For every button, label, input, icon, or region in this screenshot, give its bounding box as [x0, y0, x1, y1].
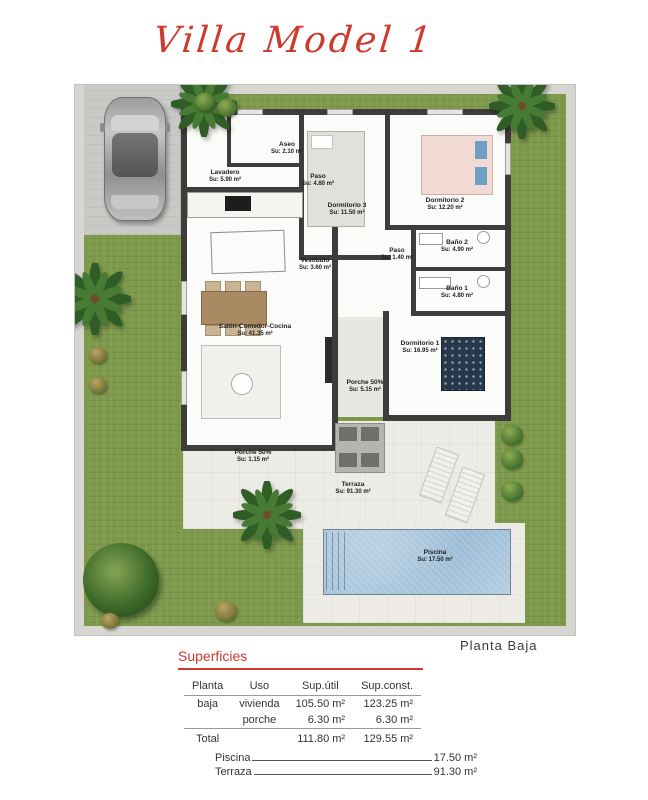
room-label-paso-2: PasoSu: 1.40 m² — [381, 247, 413, 263]
cell-uso: vivienda — [231, 696, 287, 713]
table-row: porche 6.30 m² 6.30 m² — [184, 712, 421, 729]
kitchen-island — [210, 230, 285, 275]
dining-table — [201, 291, 267, 325]
room-label-dormitorio-3: Dormitorio 3Su: 11.50 m² — [328, 202, 367, 218]
window — [505, 143, 511, 175]
outdoor-seat — [361, 453, 379, 467]
room-label-bano-1: Baño 1Su: 4.80 m² — [441, 285, 473, 301]
bed-pillow — [475, 141, 487, 159]
toilet — [477, 231, 490, 244]
room-label-porche-2: Porche 50%Su: 1.15 m² — [235, 449, 272, 465]
bush-icon — [501, 425, 523, 445]
cell-total-const: 129.55 m² — [353, 729, 421, 748]
driveway — [84, 85, 182, 235]
room-label-salon: Salón-Comedor-CocinaSu: 41.35 m² — [219, 323, 291, 339]
window — [181, 281, 187, 315]
cell-const: 6.30 m² — [353, 712, 421, 729]
cell-util: 6.30 m² — [288, 712, 354, 729]
bathroom-sink — [419, 233, 443, 245]
cell-total-util: 111.80 m² — [288, 729, 354, 748]
palm-tree-icon — [489, 85, 555, 139]
col-header-planta: Planta — [184, 678, 231, 696]
col-header-sup-const: Sup.const. — [353, 678, 421, 696]
wall — [411, 267, 511, 271]
bush-icon — [101, 613, 119, 629]
porch-floor — [335, 317, 387, 417]
wall — [383, 415, 511, 421]
room-label-porche-1: Porche 50%Su: 5.15 m² — [347, 379, 384, 395]
floor-plan: LavaderoSu: 5.90 m² AseoSu: 2.10 m² Paso… — [75, 85, 575, 635]
bed-dormitorio1 — [441, 337, 485, 391]
palm-tree-icon — [75, 263, 131, 335]
coffee-table — [231, 373, 253, 395]
cell-planta: baja — [184, 696, 231, 713]
bush-icon — [89, 347, 107, 363]
palm-tree-icon — [233, 481, 301, 549]
leader-line — [254, 773, 432, 775]
room-label-piscina: PiscinaSu: 17.50 m² — [417, 549, 452, 565]
wall — [411, 311, 511, 316]
bush-icon — [217, 99, 237, 117]
cell-util: 105.50 m² — [288, 696, 354, 713]
cell-uso: porche — [231, 712, 287, 729]
window — [181, 371, 187, 405]
extra-label: Terraza — [215, 766, 252, 778]
extra-row-terraza: Terraza 91.30 m² — [215, 766, 477, 778]
page: Villa Model 1 — [0, 0, 648, 800]
wall — [227, 163, 303, 167]
cell-const: 123.25 m² — [353, 696, 421, 713]
room-label-aseo: AseoSu: 2.10 m² — [271, 141, 303, 157]
room-label-vestibulo: VestíbuloSu: 3.60 m² — [299, 257, 331, 273]
table-row: baja vivienda 105.50 m² 123.25 m² — [184, 696, 421, 713]
extra-value: 91.30 m² — [434, 766, 477, 778]
room-label-paso: PasoSu: 4.80 m² — [302, 173, 334, 189]
tv-unit — [325, 337, 332, 383]
leader-line — [252, 759, 431, 761]
car-top-view-icon — [104, 97, 166, 221]
extra-value: 17.50 m² — [434, 752, 477, 764]
room-label-bano-2: Baño 2Su: 4.90 m² — [441, 239, 473, 255]
room-label-lavadero: LavaderoSu: 5.90 m² — [209, 169, 241, 185]
toilet — [477, 275, 490, 288]
table-row-total: Total 111.80 m² 129.55 m² — [184, 729, 421, 748]
outdoor-seat — [339, 427, 357, 441]
window — [237, 109, 263, 115]
room-label-terraza: TerrazaSu: 91.30 m² — [335, 481, 370, 497]
superficies-table: Planta Uso Sup.útil Sup.const. baja vivi… — [184, 678, 421, 747]
bush-icon — [89, 377, 107, 393]
superficies-block: Superficies Planta Uso Sup.útil Sup.cons… — [178, 648, 488, 747]
room-label-dormitorio-1: Dormitorio 1Su: 16.95 m² — [401, 340, 440, 356]
outdoor-seat — [361, 427, 379, 441]
bush-icon — [501, 449, 523, 469]
bed-pillow — [475, 167, 487, 185]
tree-icon — [83, 543, 159, 617]
window — [427, 109, 463, 115]
superficies-heading: Superficies — [178, 648, 423, 670]
wall — [385, 225, 511, 230]
bush-icon — [215, 601, 237, 621]
window — [327, 109, 353, 115]
wall — [385, 109, 390, 229]
cell-empty — [231, 729, 287, 748]
wall — [383, 311, 389, 421]
cell-planta — [184, 712, 231, 729]
bush-icon — [195, 93, 215, 111]
extras-block: Piscina 17.50 m² Terraza 91.30 m² — [215, 752, 477, 780]
room-label-dormitorio-2: Dormitorio 2Su: 12.20 m² — [426, 197, 465, 213]
extra-label: Piscina — [215, 752, 250, 764]
cooktop — [225, 196, 251, 211]
outdoor-seat — [339, 453, 357, 467]
extra-row-piscina: Piscina 17.50 m² — [215, 752, 477, 764]
col-header-uso: Uso — [231, 678, 287, 696]
wall — [332, 227, 338, 451]
bush-icon — [501, 481, 523, 501]
page-title: Villa Model 1 — [0, 20, 590, 61]
pool-steps — [326, 532, 350, 590]
col-header-sup-util: Sup.útil — [288, 678, 354, 696]
cell-total-label: Total — [184, 729, 231, 748]
bed-pillow — [311, 135, 333, 149]
